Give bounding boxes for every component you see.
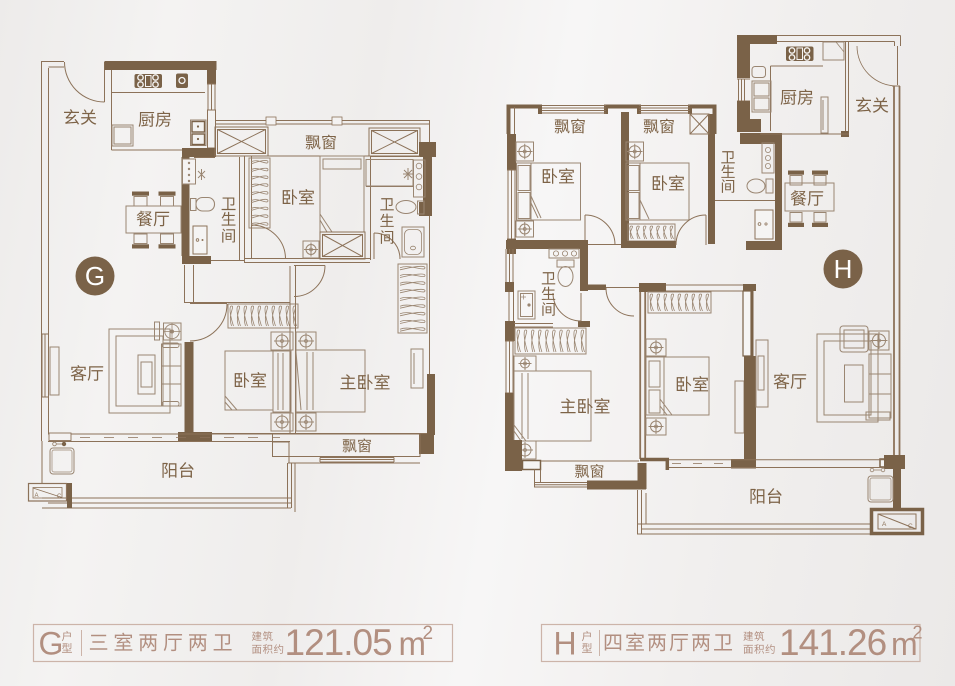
- svg-text:A: A: [35, 493, 39, 499]
- svg-text:2: 2: [423, 623, 434, 644]
- svg-text:121.05: 121.05: [285, 622, 393, 663]
- svg-text:C: C: [908, 523, 913, 530]
- svg-text:H: H: [834, 254, 853, 284]
- svg-text:G: G: [85, 261, 105, 291]
- svg-text:2: 2: [913, 623, 923, 643]
- svg-text:H: H: [554, 626, 577, 662]
- svg-text:G: G: [39, 626, 64, 662]
- svg-text:C: C: [57, 494, 62, 500]
- svg-text:A: A: [882, 521, 887, 528]
- svg-text:141.26: 141.26: [779, 622, 886, 663]
